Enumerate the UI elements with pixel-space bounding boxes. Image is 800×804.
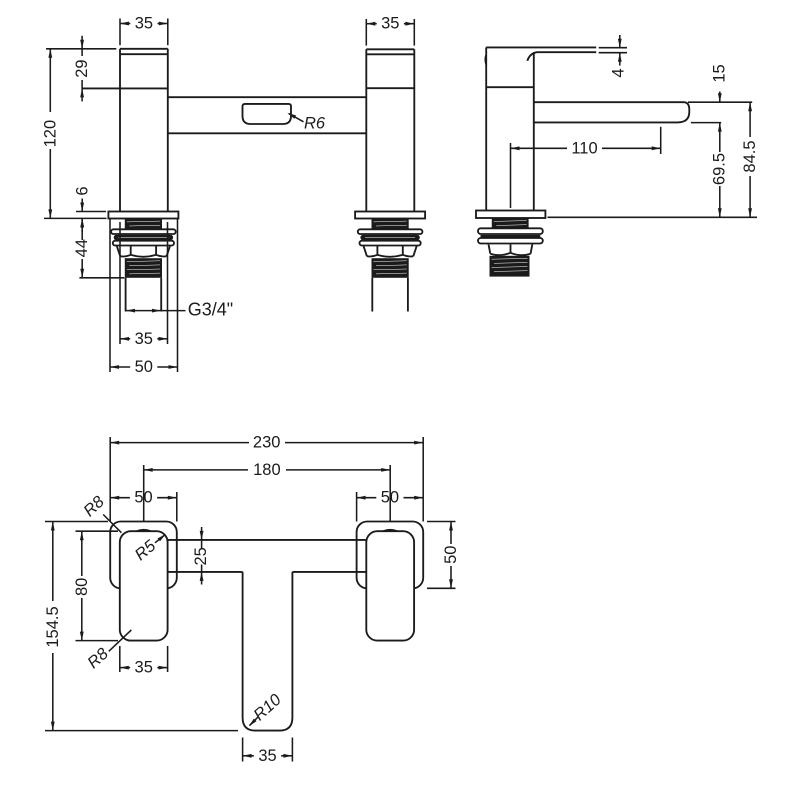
svg-text:80: 80	[73, 578, 91, 596]
svg-text:35: 35	[258, 747, 276, 765]
svg-text:R8: R8	[84, 644, 112, 672]
svg-text:120: 120	[41, 120, 59, 148]
svg-text:35: 35	[135, 330, 153, 348]
svg-text:230: 230	[253, 434, 281, 452]
svg-text:R6: R6	[304, 115, 326, 133]
svg-text:4: 4	[610, 68, 628, 77]
svg-text:50: 50	[381, 489, 399, 507]
svg-text:69.5: 69.5	[710, 153, 728, 185]
svg-text:15: 15	[710, 64, 728, 82]
svg-text:84.5: 84.5	[741, 140, 759, 172]
svg-text:180: 180	[253, 461, 281, 479]
svg-text:25: 25	[192, 547, 210, 565]
svg-text:G3/4": G3/4"	[188, 299, 233, 319]
svg-text:35: 35	[381, 15, 399, 33]
svg-text:35: 35	[135, 15, 153, 33]
svg-text:50: 50	[134, 489, 152, 507]
svg-text:50: 50	[442, 546, 460, 564]
svg-text:110: 110	[571, 139, 597, 157]
svg-text:29: 29	[73, 59, 91, 77]
svg-text:35: 35	[135, 659, 153, 677]
svg-text:154.5: 154.5	[44, 606, 62, 647]
svg-text:44: 44	[73, 239, 91, 257]
svg-text:6: 6	[74, 186, 92, 195]
svg-text:50: 50	[135, 358, 153, 376]
